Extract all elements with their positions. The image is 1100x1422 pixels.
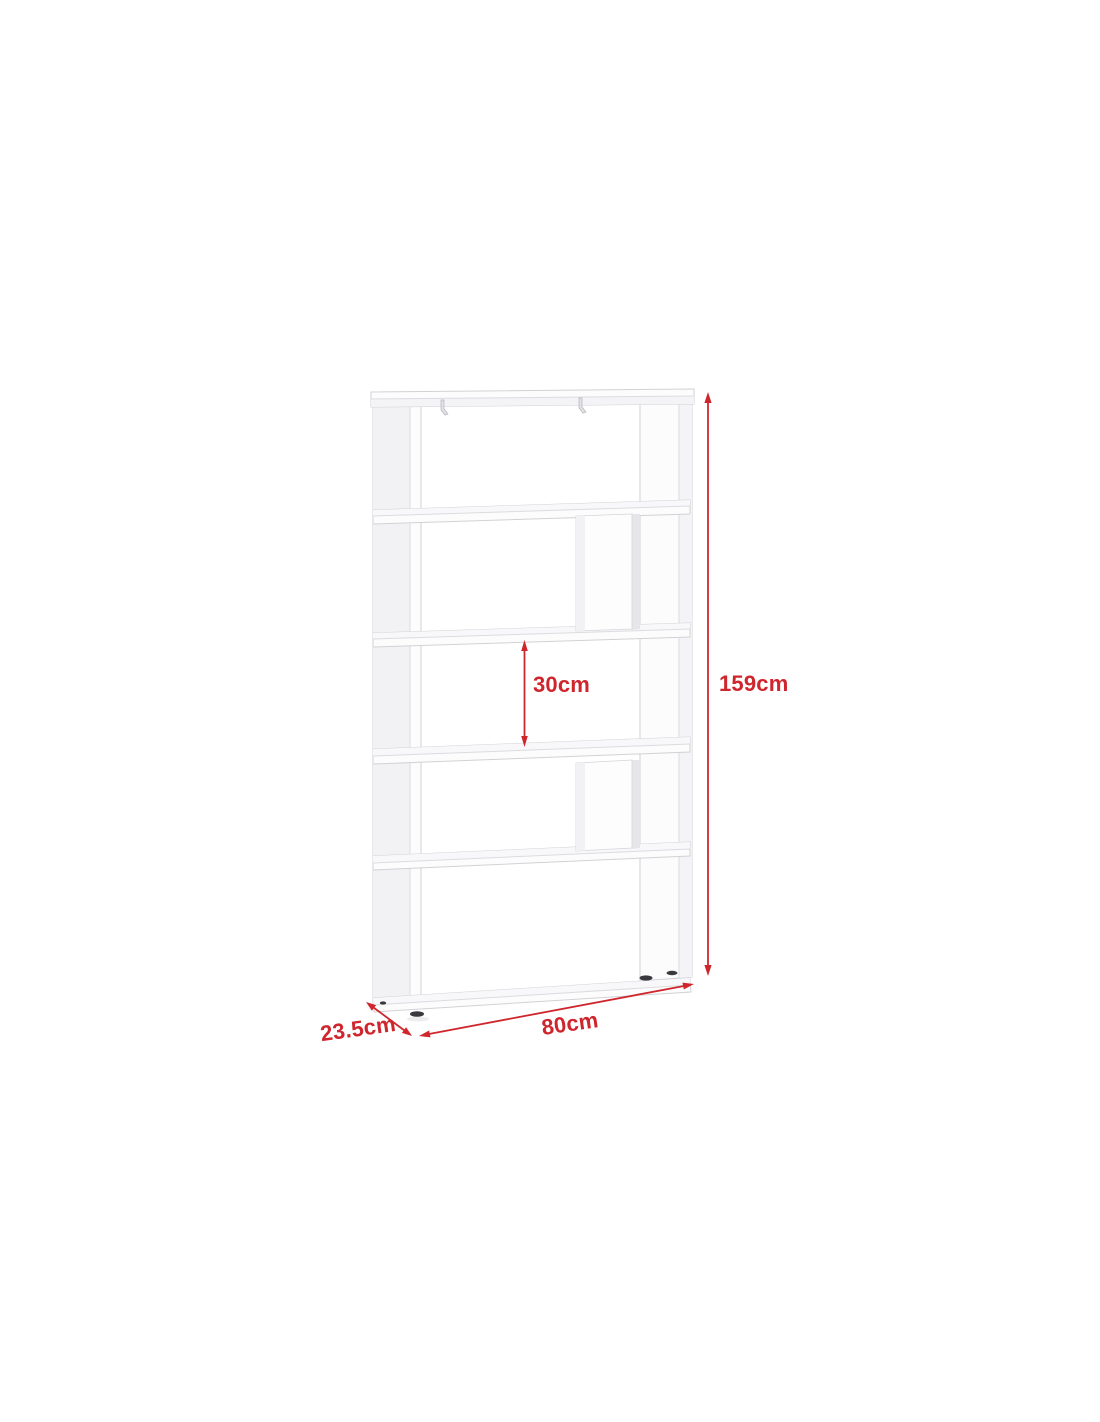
divider-tier-4 bbox=[576, 760, 640, 851]
bookcase-illustration: 159cm 30cm 80cm 23.5cm bbox=[0, 0, 1100, 1422]
foot bbox=[380, 1001, 386, 1004]
depth-dimension-label: 23.5cm bbox=[319, 1011, 398, 1046]
arrowhead-down-icon bbox=[704, 965, 711, 976]
shelf-spacing-dimension: 30cm bbox=[521, 640, 590, 747]
product-dimension-diagram: 159cm 30cm 80cm 23.5cm bbox=[0, 0, 1100, 1422]
height-dimension-label: 159cm bbox=[719, 671, 789, 696]
foot bbox=[667, 971, 678, 975]
divider-tier-2 bbox=[576, 514, 640, 631]
shelf-spacing-dimension-label: 30cm bbox=[533, 672, 590, 697]
arrowhead-left-icon bbox=[419, 1031, 431, 1038]
foot bbox=[640, 975, 653, 980]
arrowhead-up-icon bbox=[704, 392, 711, 403]
height-dimension: 159cm bbox=[704, 392, 788, 976]
right-side-panel bbox=[640, 400, 692, 981]
left-side-panel bbox=[373, 404, 421, 1005]
bookcase bbox=[371, 389, 694, 1021]
foot bbox=[410, 1011, 424, 1017]
top-panel bbox=[371, 389, 694, 407]
